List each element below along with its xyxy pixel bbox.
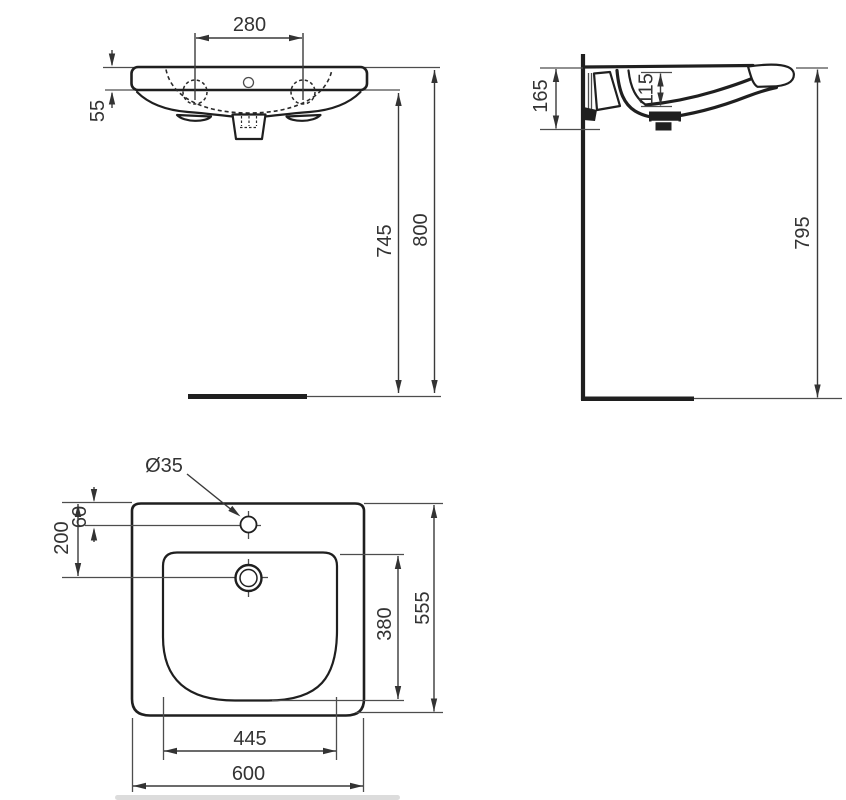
washbasin-technical-drawing: 280 55 745 800 (0, 0, 846, 800)
dim-745-label: 745 (374, 224, 396, 257)
dim-380-label: 380 (374, 607, 396, 640)
plan-view: Ø35 60 200 380 (51, 455, 443, 800)
dim-445-label: 445 (233, 728, 266, 750)
dim-795-label: 795 (792, 216, 814, 249)
side-view: 165 115 795 (530, 54, 842, 400)
dim-200-label: 200 (51, 521, 73, 554)
dim-165-label: 165 (530, 79, 552, 112)
dim-115-label: 115 (636, 73, 658, 105)
dim-800-label: 800 (410, 213, 432, 246)
side-front-rim-nose (748, 65, 794, 87)
dim-280-label: 280 (233, 14, 266, 36)
dim-55-label: 55 (87, 100, 109, 122)
dimension-height-to-rim: 795 (792, 68, 828, 398)
dimension-height-underside: 745 (374, 93, 402, 393)
dim-600-label: 600 (232, 763, 265, 785)
plan-tap-hole (241, 517, 257, 533)
front-overflow-hole (244, 78, 254, 88)
bottom-crop-artifact (115, 795, 400, 800)
dim-555-label: 555 (412, 591, 434, 624)
dim-d35-label: Ø35 (145, 455, 183, 477)
front-view: 280 55 745 800 (87, 14, 441, 397)
dimension-bowl-inner-width: 445 (164, 697, 337, 760)
dimension-tap-hole-offset: 60 (69, 487, 97, 542)
dimension-drain-offset: 200 (51, 504, 81, 576)
technical-drawing-page: 280 55 745 800 (0, 0, 846, 800)
side-basin-profile (584, 65, 794, 131)
dimension-rim-height: 55 (87, 50, 115, 122)
dimension-overall-depth: 555 (356, 504, 443, 713)
dimension-height-overall: 800 (410, 70, 438, 393)
dimension-tap-hole-diameter: Ø35 (145, 455, 240, 517)
